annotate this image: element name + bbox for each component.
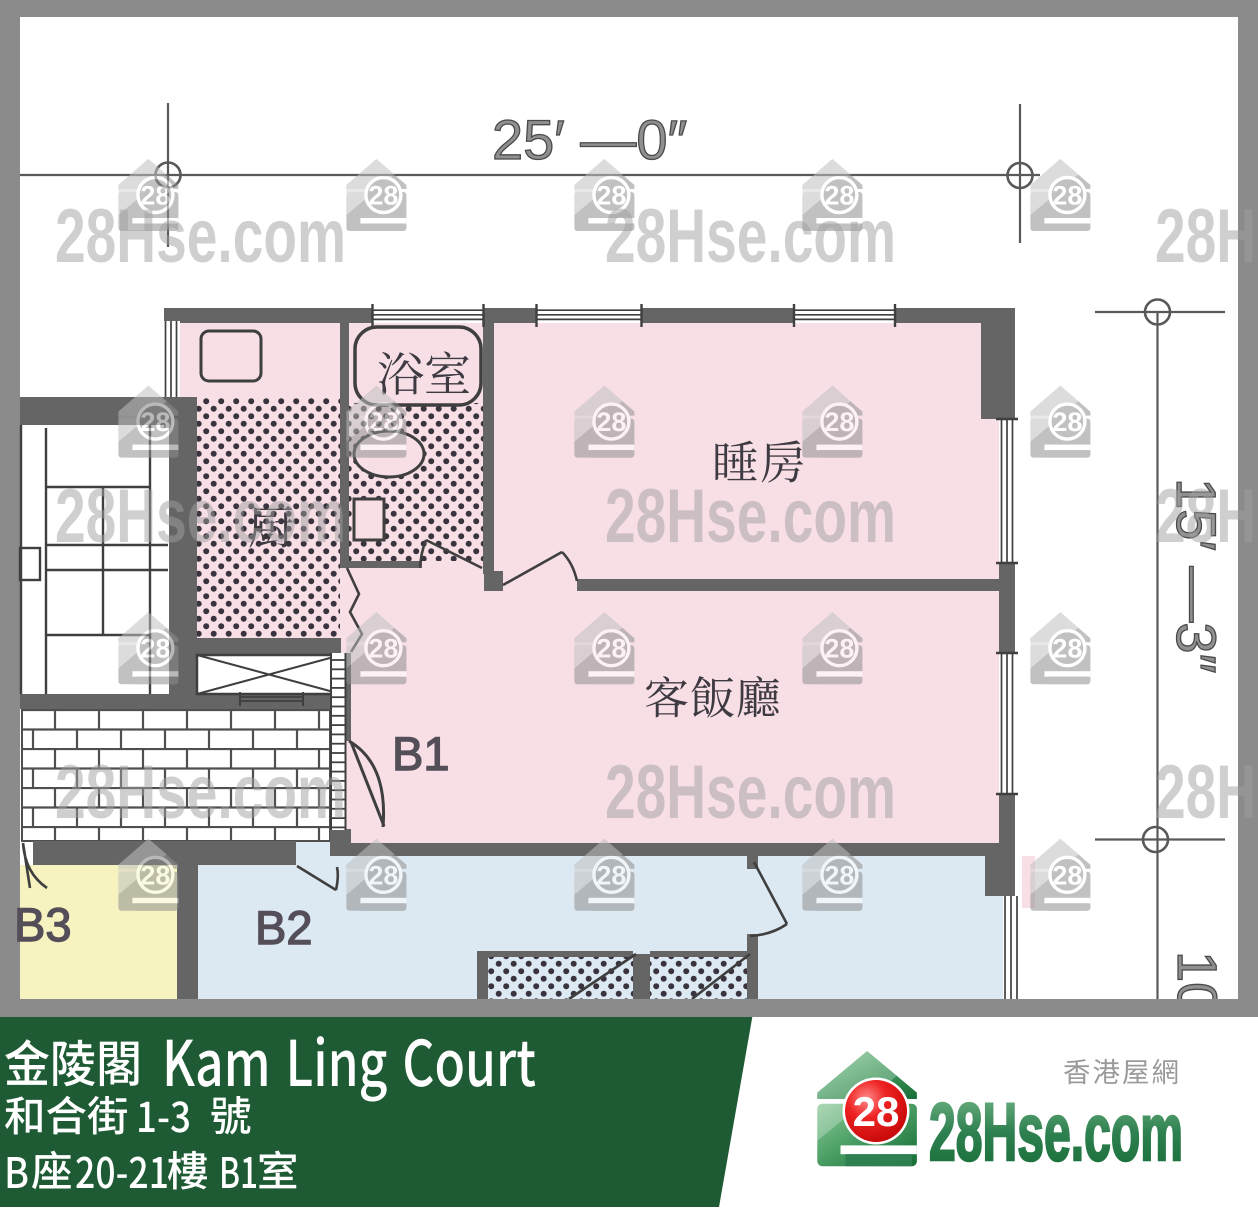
svg-text:B3: B3 (14, 898, 72, 951)
svg-text:28Hse.com: 28Hse.com (929, 1087, 1183, 1178)
svg-text:B1: B1 (392, 727, 450, 780)
svg-text:28Hse.com: 28Hse.com (605, 194, 896, 279)
svg-text:28Hse.com: 28Hse.com (1155, 750, 1258, 835)
svg-text:28: 28 (853, 1088, 900, 1135)
svg-text:28Hse.com: 28Hse.com (55, 750, 346, 835)
svg-text:28Hse.com: 28Hse.com (605, 474, 896, 559)
svg-text:25′ —0″: 25′ —0″ (492, 108, 687, 171)
svg-text:28Hse.com: 28Hse.com (605, 750, 896, 835)
svg-text:28Hse.com: 28Hse.com (1155, 474, 1258, 559)
svg-text:28Hse.com: 28Hse.com (55, 194, 346, 279)
svg-text:28Hse.com: 28Hse.com (1155, 194, 1258, 279)
svg-text:B2: B2 (255, 901, 313, 954)
svg-text:28Hse.com: 28Hse.com (55, 474, 346, 559)
